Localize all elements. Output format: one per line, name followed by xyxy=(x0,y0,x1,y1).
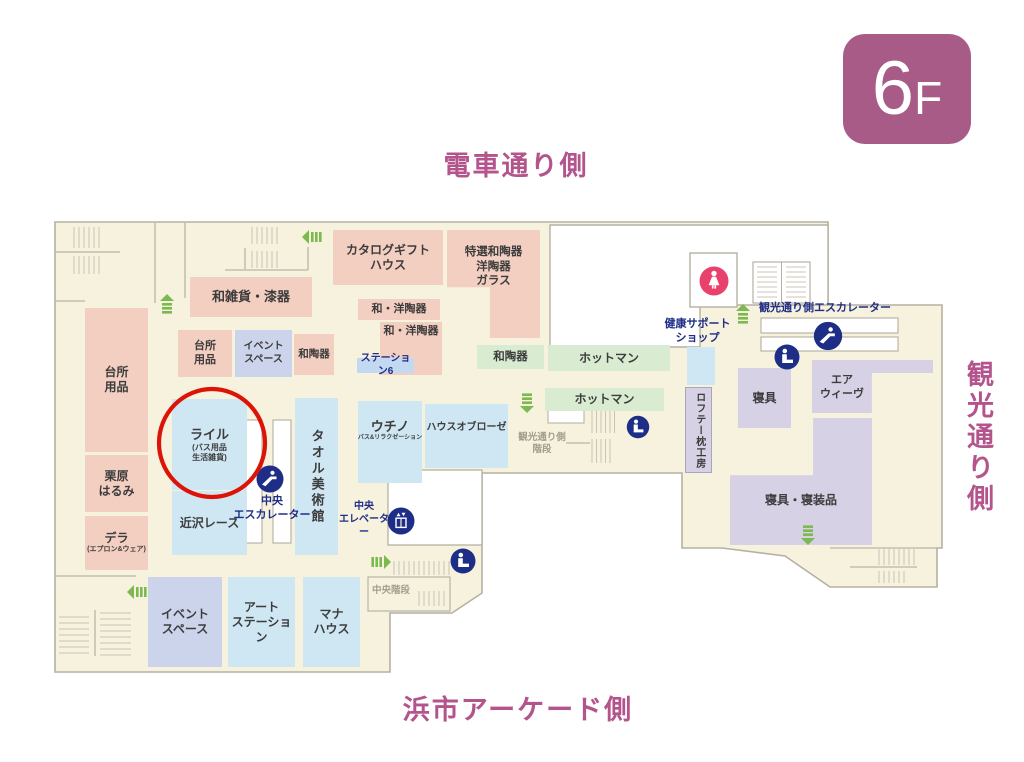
shop-catalog-gift-house: カタログギフト ハウス xyxy=(333,230,443,285)
shop-house-of-rose: ハウスオブローゼ xyxy=(425,404,508,468)
service-icon xyxy=(451,549,476,574)
shop-airweave-label: エア ウィーヴ xyxy=(812,366,872,408)
shop-wazakka-shikki: 和雑貨・漆器 xyxy=(190,277,312,317)
shop-loftee-makura-koubou: ロフテー枕工房 xyxy=(685,387,712,473)
escalator-icon xyxy=(257,466,284,493)
shop-mana-house: マナ ハウス xyxy=(303,577,360,667)
stairs-top-right xyxy=(753,262,810,303)
shop-daidokoro-small: 台所 用品 xyxy=(178,330,232,377)
central-escalator-shafts xyxy=(245,420,291,543)
label-kankou-side-stairs: 観光通り側 階段 xyxy=(512,426,572,462)
floor-map-page: 和雑貨・漆器 カタログギフト ハウス 特選和陶器 洋陶器 ガラス 和・洋陶器 和… xyxy=(0,0,1024,762)
direction-label-bottom: 浜市アーケード側 xyxy=(346,688,690,727)
direction-label-right: 観光通り側 xyxy=(956,342,998,532)
shop-hotman-2: ホットマン xyxy=(545,388,664,411)
shop-watouki-green: 和陶器 xyxy=(477,345,544,369)
right-arrow-icon xyxy=(371,555,391,569)
shop-wayou-touki-1: 和・洋陶器 xyxy=(358,299,440,320)
label-central-stairs: 中央階段 xyxy=(368,585,414,598)
shop-daidokoro-tall: 台所 用品 xyxy=(85,308,148,452)
shop-event-space-top: イベント スペース xyxy=(235,330,292,377)
shop-station6: ステーション6 xyxy=(357,358,414,373)
shop-event-space-bottom: イベント スペース xyxy=(148,577,222,667)
shop-watouki-pink: 和陶器 xyxy=(294,334,334,375)
shop-shingu-shinsouhin-area xyxy=(730,418,872,545)
label-central-elevator: 中央 エレベーター xyxy=(335,504,393,534)
unlabeled-blue-area xyxy=(687,347,715,385)
shop-lyle: ライル (バス用品 生活雑貨) xyxy=(172,399,247,490)
escalator-icon xyxy=(814,322,842,350)
direction-label-top: 電車通り側 xyxy=(366,144,666,183)
shop-shingu-shinsouhin-label: 寝具・寝装品 xyxy=(730,492,872,510)
down-arrow-icon xyxy=(520,393,534,413)
doorway xyxy=(548,410,584,423)
shop-uchino: ウチノ バス&リラクゼーション xyxy=(358,401,422,483)
shop-art-station: アート ステーション xyxy=(228,577,295,667)
up-arrow-icon xyxy=(160,294,174,314)
shop-tokusen-watouki-label: 特選和陶器 洋陶器 ガラス xyxy=(447,236,540,298)
women-restroom-icon xyxy=(700,267,729,296)
label-kankou-side-escalator: 観光通り側エスカレーター xyxy=(757,301,893,316)
left-arrow-icon xyxy=(127,585,147,599)
kankou-escalator-shafts xyxy=(761,318,898,351)
restroom-block xyxy=(690,253,737,307)
service-icon xyxy=(627,416,650,439)
shop-kurihara-harumi: 栗原 はるみ xyxy=(85,455,148,512)
floor-badge: 6F xyxy=(843,34,971,144)
shop-towel-museum: タオル美術館 xyxy=(295,398,338,555)
left-arrow-icon xyxy=(302,230,322,244)
shop-shingu: 寝具 xyxy=(738,368,791,428)
shop-dera: デラ (エプロン&ウェア) xyxy=(85,516,148,570)
label-central-escalator: 中央 エスカレーター xyxy=(228,492,316,524)
service-icon xyxy=(775,345,800,370)
label-health-support-shop: 健康サポート ショップ xyxy=(645,312,750,350)
